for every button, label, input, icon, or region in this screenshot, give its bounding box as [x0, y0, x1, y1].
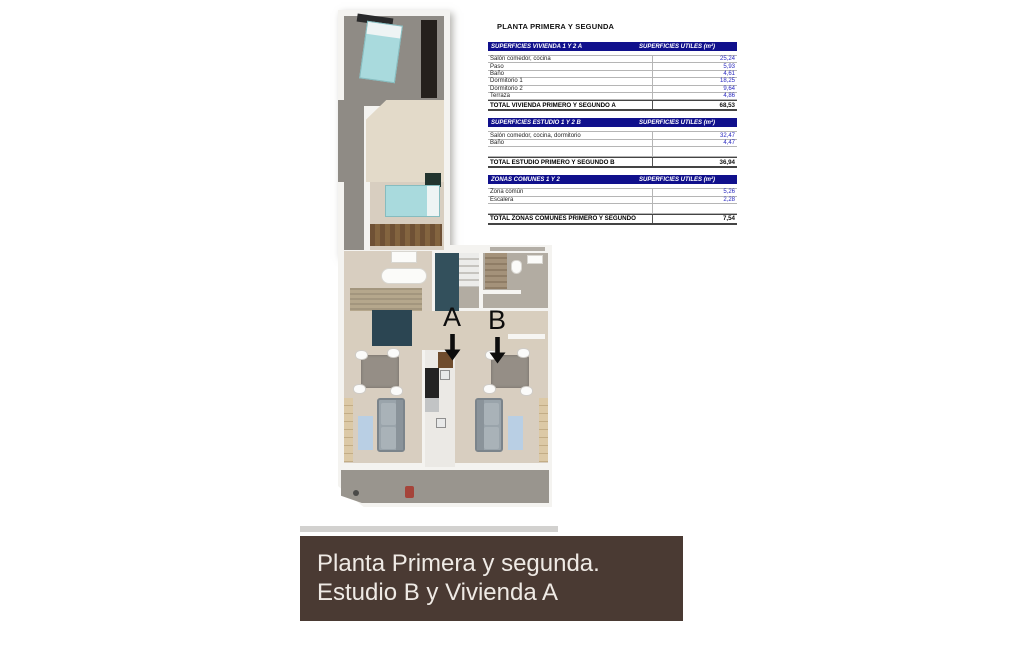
unit-a-marker: A [437, 304, 467, 361]
row-value: 4,86 [652, 93, 737, 99]
table-row: Terraza4,86 [488, 93, 737, 100]
terrace-strip-floor [338, 100, 364, 182]
total-label: TOTAL ESTUDIO PRIMERO Y SEGUNDO B [488, 158, 652, 166]
dining-table [361, 355, 399, 388]
table-section-estudio-b: SUPERFICIES ESTUDIO 1 Y 2 B SUPERFICIES … [488, 118, 737, 168]
bathtub [381, 268, 427, 284]
table-total-row: TOTAL ZONAS COMUNES PRIMERO Y SEGUNDO7,5… [488, 214, 737, 225]
unit-b-label: B [488, 307, 506, 334]
total-value: 68,53 [652, 101, 737, 109]
staircase [459, 253, 479, 287]
table-total-row: TOTAL VIVIENDA PRIMERO Y SEGUNDO A68,53 [488, 100, 737, 111]
bedroom-2-terrace-floor [344, 182, 364, 250]
table-row: Dormitorio 29,64 [488, 86, 737, 93]
table-empty-row [488, 204, 737, 214]
section-header: SUPERFICIES VIVIENDA 1 Y 2 A SUPERFICIES… [488, 42, 737, 51]
chair [390, 386, 403, 396]
total-label: TOTAL VIVIENDA PRIMERO Y SEGUNDO A [488, 101, 652, 109]
row-value: 9,64 [652, 86, 737, 92]
row-label: Baño [488, 140, 652, 146]
row-label: Terraza [488, 93, 652, 99]
section-header-right: SUPERFICIES UTILES (m²) [639, 120, 715, 126]
toilet [511, 260, 522, 274]
caption-line-2: Estudio B y Vivienda A [317, 578, 673, 607]
sofa [377, 398, 405, 452]
table-empty-row [488, 147, 737, 157]
section-header-left: SUPERFICIES ESTUDIO 1 Y 2 B [491, 120, 581, 126]
row-value [652, 204, 737, 213]
kitchen-counter [425, 368, 439, 398]
chair [520, 386, 533, 396]
sofa [475, 398, 503, 452]
planter [405, 486, 414, 498]
shower-mat [350, 288, 422, 312]
section-rows: Zona común5,26 Escalera2,28 TOTAL ZONAS … [488, 188, 737, 225]
kitchen-appliance [436, 418, 446, 428]
sofa-backrest [477, 400, 484, 450]
section-header-left: SUPERFICIES VIVIENDA 1 Y 2 A [491, 44, 582, 50]
sofa-backrest [396, 400, 403, 450]
chair [355, 350, 368, 360]
row-value: 4,61 [652, 71, 737, 77]
row-label: Salón comedor, cocina, dormitorio [488, 132, 652, 138]
table-row: Salón comedor, cocina, dormitorio32,47 [488, 132, 737, 139]
unit-b-arrow-down-icon [489, 337, 506, 364]
unit-a-arrow-down-icon [444, 334, 461, 361]
kitchen-appliance [425, 398, 439, 412]
unit-a-label: A [443, 304, 461, 331]
bed-pillow [427, 186, 439, 216]
row-label [488, 147, 652, 156]
row-label: Salón comedor, cocina [488, 56, 652, 62]
wall [508, 334, 545, 339]
row-value: 5,93 [652, 63, 737, 69]
row-label: Dormitorio 2 [488, 86, 652, 92]
caption-line-1: Planta Primera y segunda. [317, 549, 673, 578]
row-value: 4,47 [652, 140, 737, 146]
table-section-vivienda-a: SUPERFICIES VIVIENDA 1 Y 2 A SUPERFICIES… [488, 42, 737, 111]
total-value: 7,54 [652, 215, 737, 223]
table-row: Escalera2,28 [488, 197, 737, 204]
table-row: Salón comedor, cocina25,24 [488, 56, 737, 63]
chair [483, 384, 496, 394]
section-header: ZONAS COMUNES 1 Y 2 SUPERFICIES UTILES (… [488, 175, 737, 184]
table-row: Baño4,61 [488, 71, 737, 78]
terraza-room-floor [366, 100, 444, 182]
sink [391, 251, 417, 263]
balcony-floor [341, 470, 549, 503]
row-value: 5,26 [652, 189, 737, 195]
table-row: Paso5,93 [488, 63, 737, 70]
staircase [485, 253, 507, 289]
table-row: Zona común5,26 [488, 189, 737, 196]
row-label: Escalera [488, 197, 652, 203]
section-header-left: ZONAS COMUNES 1 Y 2 [491, 177, 560, 183]
floor-drain [353, 490, 359, 496]
entry-step [490, 247, 545, 251]
sofa-cushion [484, 427, 499, 449]
section-header: SUPERFICIES ESTUDIO 1 Y 2 B SUPERFICIES … [488, 118, 737, 127]
wall [479, 253, 483, 308]
row-value: 32,47 [652, 132, 737, 138]
chair [517, 348, 530, 358]
section-rows: Salón comedor, cocina, dormitorio32,47 B… [488, 131, 737, 168]
table-row: Dormitorio 118,25 [488, 78, 737, 85]
row-label: Paso [488, 63, 652, 69]
total-label: TOTAL ZONAS COMUNES PRIMERO Y SEGUNDO [488, 215, 652, 223]
section-header-right: SUPERFICIES UTILES (m²) [639, 177, 715, 183]
table-title: PLANTA PRIMERA Y SEGUNDA [497, 22, 737, 31]
table-total-row: TOTAL ESTUDIO PRIMERO Y SEGUNDO B36,94 [488, 157, 737, 168]
cabinet [344, 398, 353, 462]
sofa-cushion [381, 427, 396, 449]
sink [527, 255, 543, 264]
row-value: 18,25 [652, 78, 737, 84]
wall [479, 290, 521, 294]
table-row: Baño4,47 [488, 140, 737, 147]
row-label: Dormitorio 1 [488, 78, 652, 84]
bathroom-b-floor [372, 310, 412, 346]
row-value: 25,24 [652, 56, 737, 62]
plan-ground-shadow [300, 526, 558, 532]
row-label: Zona común [488, 189, 652, 195]
page: A B [0, 0, 1020, 670]
table-section-zonas-comunes: ZONAS COMUNES 1 Y 2 SUPERFICIES UTILES (… [488, 175, 737, 225]
caption-banner: Planta Primera y segunda. Estudio B y Vi… [300, 536, 683, 621]
unit-b-marker: B [482, 307, 512, 364]
chair [353, 384, 366, 394]
sofa-cushion [484, 403, 499, 425]
dining-set [353, 348, 407, 396]
wood-closet [370, 224, 442, 246]
chair [387, 348, 400, 358]
surface-area-table: PLANTA PRIMERA Y SEGUNDA SUPERFICIES VIV… [488, 20, 737, 232]
total-value: 36,94 [652, 158, 737, 166]
sofa-cushion [381, 403, 396, 425]
bed-pillow [366, 22, 401, 39]
cabinet [539, 398, 548, 462]
rug [508, 416, 523, 450]
section-header-right: SUPERFICIES UTILES (m²) [639, 44, 715, 50]
row-label: Baño [488, 71, 652, 77]
row-label [488, 204, 652, 213]
kitchen-appliance [440, 370, 450, 380]
row-value [652, 147, 737, 156]
section-rows: Salón comedor, cocina25,24 Paso5,93 Baño… [488, 55, 737, 111]
bed [385, 185, 440, 217]
wardrobe [421, 20, 437, 98]
row-value: 2,28 [652, 197, 737, 203]
rug [358, 416, 373, 450]
